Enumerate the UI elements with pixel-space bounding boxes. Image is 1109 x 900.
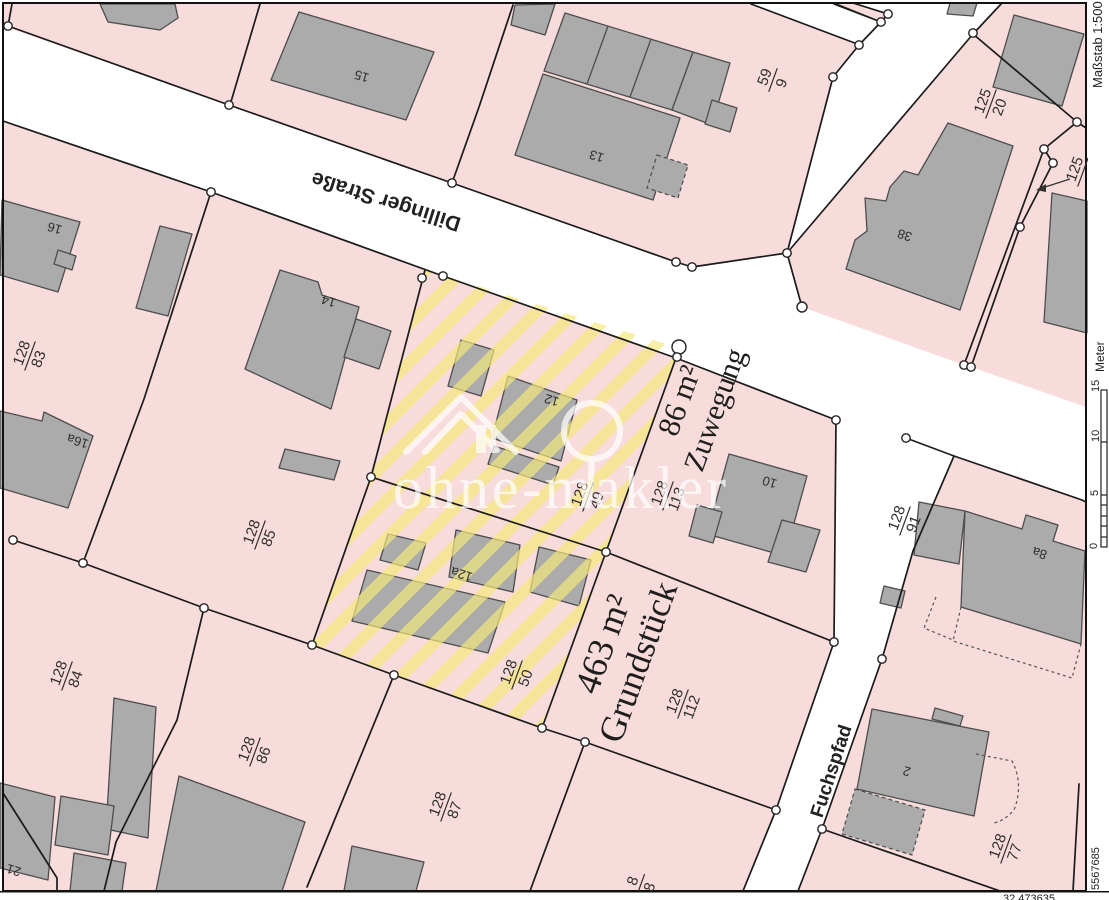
svg-text:15: 15 [1090, 380, 1102, 392]
svg-text:10: 10 [1090, 430, 1102, 442]
svg-text:5567685: 5567685 [1090, 847, 1102, 890]
svg-text:ohne-makler: ohne-makler [393, 455, 729, 521]
svg-text:0: 0 [1088, 543, 1100, 549]
svg-text:5: 5 [1089, 490, 1101, 496]
svg-text:Meter: Meter [1093, 341, 1107, 372]
svg-text:Maßstab 1:500: Maßstab 1:500 [1090, 1, 1105, 88]
svg-text:32,473635: 32,473635 [1003, 893, 1055, 900]
